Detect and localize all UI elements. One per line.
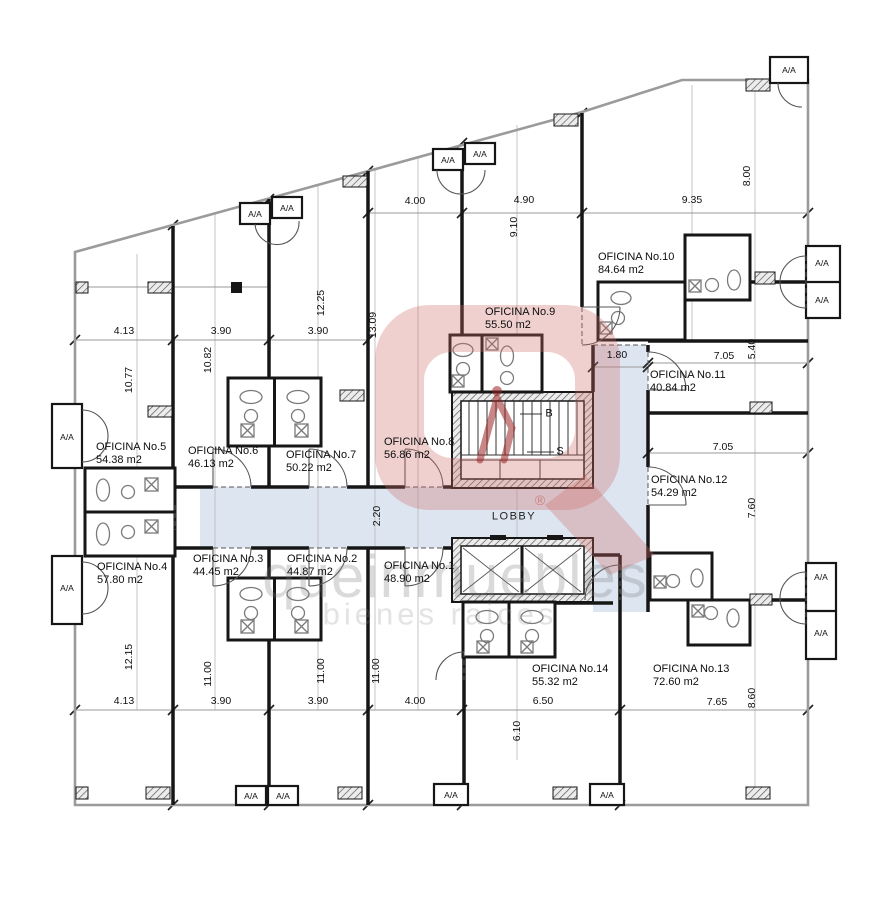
office-label-7: OFICINA No.750.22 m2 — [286, 449, 356, 475]
dim-label: 4.90 — [514, 195, 534, 206]
office-name: OFICINA No.2 — [287, 553, 357, 566]
office-area: 72.60 m2 — [653, 676, 729, 689]
ac-unit-label: A/A — [280, 204, 294, 213]
office-label-11: OFICINA No.1140.84 m2 — [650, 369, 726, 395]
office-name: OFICINA No.14 — [532, 663, 608, 676]
dim-label: 9.35 — [682, 195, 702, 206]
ac-unit-label: A/A — [276, 792, 290, 801]
office-name: OFICINA No.7 — [286, 449, 356, 462]
ac-unit-label: A/A — [473, 150, 487, 159]
watermark-tagline: bienes raices — [323, 599, 558, 630]
dim-label: 6.50 — [533, 696, 553, 707]
dim-label: 5.40 — [747, 339, 758, 359]
office-label-10: OFICINA No.1084.64 m2 — [598, 251, 674, 277]
office-label-5: OFICINA No.554.38 m2 — [96, 441, 166, 467]
dim-label: 4.00 — [405, 696, 425, 707]
dim-label: 4.13 — [114, 326, 134, 337]
office-name: OFICINA No.11 — [650, 369, 726, 382]
ac-unit-label: A/A — [782, 66, 796, 75]
office-label-2: OFICINA No.244.87 m2 — [287, 553, 357, 579]
office-label-1: OFICINA No.148.90 m2 — [384, 560, 454, 586]
office-label-4: OFICINA No.457.80 m2 — [97, 561, 167, 587]
dim-label: 12.25 — [316, 290, 327, 316]
floor-plan: queinmuebles bienes raices ® OFICINA No.… — [0, 0, 877, 900]
office-name: OFICINA No.13 — [653, 663, 729, 676]
ac-closets — [52, 57, 840, 805]
dim-label: 3.90 — [308, 696, 328, 707]
ac-unit-label: A/A — [248, 210, 262, 219]
office-name: OFICINA No.8 — [384, 436, 454, 449]
dim-label: 2.20 — [372, 506, 383, 526]
ac-unit-label: A/A — [60, 584, 74, 593]
ac-unit-label: A/A — [60, 433, 74, 442]
dim-label: 6.10 — [512, 721, 523, 741]
dim-label: 3.90 — [308, 326, 328, 337]
lobby-label: LOBBY — [492, 512, 536, 523]
dim-label: 4.13 — [114, 696, 134, 707]
office-name: OFICINA No.10 — [598, 251, 674, 264]
dim-label: 9.10 — [509, 217, 520, 237]
dim-label: 7.65 — [707, 697, 727, 708]
office-name: OFICINA No.4 — [97, 561, 167, 574]
dim-label: 11.00 — [371, 658, 382, 684]
office-area: 57.80 m2 — [97, 574, 167, 587]
office-label-8: OFICINA No.856.86 m2 — [384, 436, 454, 462]
office-label-14: OFICINA No.1455.32 m2 — [532, 663, 608, 689]
office-area: 48.90 m2 — [384, 573, 454, 586]
office-name: OFICINA No.9 — [485, 306, 555, 319]
office-area: 44.87 m2 — [287, 566, 357, 579]
office-area: 55.50 m2 — [485, 319, 555, 332]
office-name: OFICINA No.3 — [193, 553, 263, 566]
ac-unit-label: A/A — [815, 296, 829, 305]
office-area: 50.22 m2 — [286, 462, 356, 475]
office-area: 56.86 m2 — [384, 449, 454, 462]
ac-unit-label: A/A — [814, 573, 828, 582]
office-label-13: OFICINA No.1372.60 m2 — [653, 663, 729, 689]
ac-unit-label: A/A — [814, 629, 828, 638]
ac-unit-label: A/A — [444, 791, 458, 800]
office-name: OFICINA No.12 — [651, 474, 727, 487]
office-area: 40.84 m2 — [650, 382, 726, 395]
office-label-12: OFICINA No.1254.29 m2 — [651, 474, 727, 500]
dim-label: 3.90 — [211, 326, 231, 337]
ac-unit-label: A/A — [600, 791, 614, 800]
office-area: 54.29 m2 — [651, 487, 727, 500]
dim-label: 10.82 — [203, 347, 214, 373]
office-label-3: OFICINA No.344.45 m2 — [193, 553, 263, 579]
dim-label: 7.60 — [747, 498, 758, 518]
dim-label: 7.05 — [713, 442, 733, 453]
dim-label: 12.15 — [124, 644, 135, 670]
dim-label: 8.00 — [742, 166, 753, 186]
ac-unit-label: A/A — [441, 156, 455, 165]
stairs-down-label: S — [556, 447, 563, 458]
office-area: 55.32 m2 — [532, 676, 608, 689]
stairs-up-label: B — [545, 409, 552, 420]
office-area: 46.13 m2 — [188, 458, 258, 471]
dim-label: 11.00 — [203, 661, 214, 687]
dim-label: 10.77 — [124, 367, 135, 393]
dim-label: 8.60 — [747, 688, 758, 708]
office-label-9: OFICINA No.955.50 m2 — [485, 306, 555, 332]
office-area: 44.45 m2 — [193, 566, 263, 579]
office-label-6: OFICINA No.646.13 m2 — [188, 445, 258, 471]
column-solid — [231, 282, 242, 293]
dim-label: 1.80 — [607, 350, 627, 361]
office-area: 54.38 m2 — [96, 454, 166, 467]
dim-label: 4.00 — [405, 196, 425, 207]
dim-label: 7.05 — [714, 351, 734, 362]
office-name: OFICINA No.5 — [96, 441, 166, 454]
ac-unit-label: A/A — [815, 259, 829, 268]
registered-mark: ® — [535, 493, 545, 507]
office-name: OFICINA No.1 — [384, 560, 454, 573]
dim-label: 13.09 — [368, 312, 379, 338]
office-name: OFICINA No.6 — [188, 445, 258, 458]
ac-unit-label: A/A — [244, 792, 258, 801]
office-area: 84.64 m2 — [598, 264, 674, 277]
dim-label: 3.90 — [211, 696, 231, 707]
dim-label: 11.00 — [316, 658, 327, 684]
